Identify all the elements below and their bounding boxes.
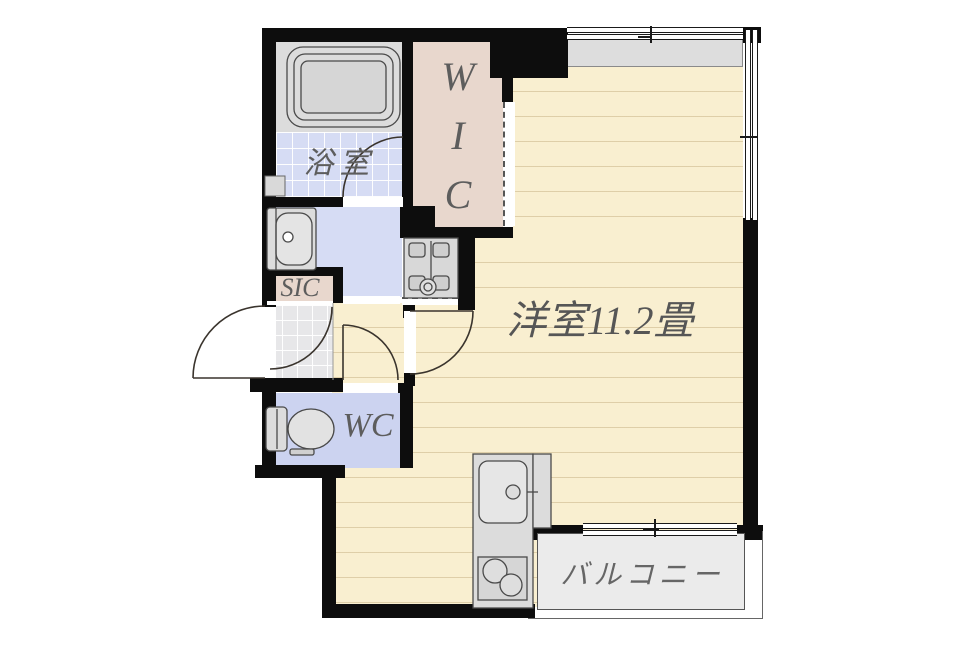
wall [333, 267, 343, 303]
balcony-label: バルコニー [540, 554, 745, 592]
wc-label-text: WC [343, 407, 394, 445]
entrance-door-opening [262, 307, 276, 378]
wall [743, 218, 758, 540]
wall [262, 28, 513, 42]
window-balcony [583, 530, 737, 536]
main-room-label-text: 洋室11.2畳 [506, 288, 693, 346]
wc-door-opening [343, 383, 398, 393]
entrance-door-arc [193, 306, 265, 378]
wall [250, 378, 343, 392]
sic-label-text: SIC [281, 273, 320, 303]
wall [322, 465, 336, 613]
wall [322, 604, 535, 618]
entrance-floor [267, 305, 333, 380]
wic-letter-w: W [441, 47, 474, 106]
wic-letter-i: I [451, 106, 464, 165]
wall [502, 38, 513, 102]
window-top [567, 34, 743, 40]
bathroom-label-text: 浴室 [304, 138, 376, 182]
window-top [567, 27, 743, 33]
wall [262, 197, 343, 207]
wic-letter-c: C [445, 165, 472, 224]
wall [262, 28, 276, 308]
wc-label: WC [328, 402, 408, 450]
wall [404, 371, 415, 386]
main-room-label: 洋室11.2畳 [455, 292, 745, 342]
window-right [752, 30, 758, 220]
window-tick [740, 136, 758, 138]
wic-folding-door [503, 102, 515, 226]
window-tick [638, 36, 652, 38]
sic-label: SIC [267, 273, 333, 303]
window-right [745, 30, 751, 220]
floor-plan: 浴室 W I C SIC WC 洋室11.2畳 バルコニー [0, 0, 960, 649]
wic-label: W I C [413, 46, 503, 224]
washroom-door-opening [343, 296, 400, 304]
bathroom-door-opening [343, 197, 403, 207]
bathtub-zone [276, 42, 403, 132]
washing-machine-pan [404, 238, 458, 298]
bathroom-label: 浴室 [276, 132, 403, 188]
main-room-floor [513, 67, 743, 238]
window-tick [650, 26, 652, 43]
window-balcony [583, 523, 737, 529]
washer-nook-opening [402, 297, 458, 305]
balcony-label-text: バルコニー [560, 553, 724, 593]
main-door-opening [404, 311, 416, 373]
window-ledge [567, 39, 743, 67]
window-tick [643, 528, 659, 530]
wall [262, 378, 276, 478]
wall [402, 28, 413, 208]
